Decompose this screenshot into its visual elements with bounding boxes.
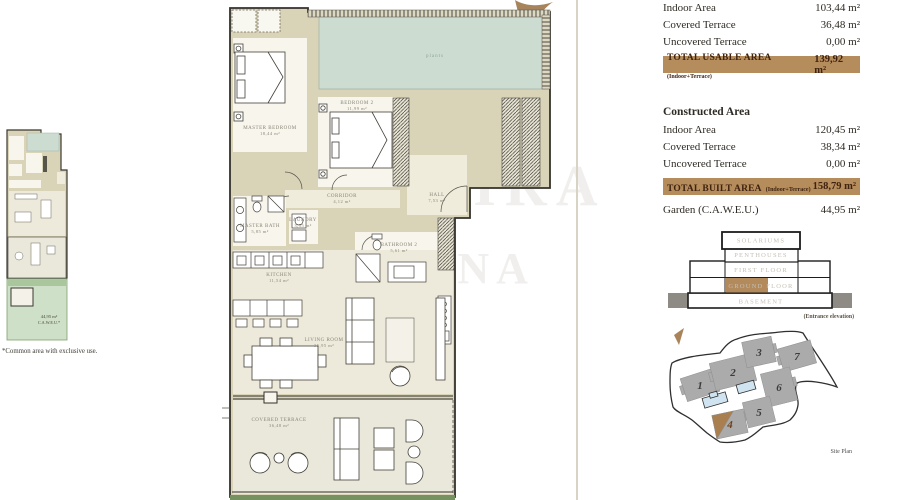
- plants-label: plants: [426, 54, 444, 59]
- row-value: 38,34 m²: [821, 141, 860, 153]
- site-plan: 1 2 3 7 6 5 4 Site Plan: [660, 325, 860, 465]
- table-row: Covered Terrace 36,48 m²: [663, 19, 860, 36]
- row-label: Garden (C.A.W.E.U.): [663, 204, 759, 216]
- elevation-caption: (Entrance elevation): [804, 313, 854, 320]
- floor-label-ground-floor: GROUND FLOOR: [728, 283, 793, 290]
- row-label: Covered Terrace: [663, 19, 736, 31]
- total-usable-band: TOTAL USABLE AREA (Indoor+Terrace) 139,9…: [663, 56, 860, 73]
- table-row: Covered Terrace 38,34 m²: [663, 141, 860, 158]
- row-value: 36,48 m²: [821, 19, 860, 31]
- floor-label-solariums: SOLARIUMS: [737, 238, 785, 245]
- floor-label-basement: BASEMENT: [739, 299, 784, 306]
- bedroom2-bed: [319, 104, 392, 178]
- garden-row: Garden (C.A.W.E.U.) 44,95 m²: [663, 204, 860, 221]
- row-label: Indoor Area: [663, 2, 716, 14]
- row-value: 0,00 m²: [826, 36, 860, 48]
- plants-hatch-top: [308, 10, 550, 17]
- total-label: TOTAL USABLE AREA: [667, 53, 771, 63]
- thumbnail-garden-note: C.A.W.E.U.*: [38, 320, 60, 325]
- ground-right: [832, 293, 852, 308]
- row-value: 103,44 m²: [815, 2, 860, 14]
- total-qualifier: (Indoor+Terrace): [766, 187, 811, 193]
- site-north-arrow-icon: [674, 328, 684, 345]
- total-qualifier: (Indoor+Terrace): [667, 74, 712, 80]
- ground-left: [668, 293, 688, 308]
- brochure-page: SIRA INTERNA WWW 44,95 m² C.A.W.E.U.* *C…: [0, 0, 900, 500]
- thumbnail-footnote: *Common area with exclusive use.: [2, 348, 142, 355]
- usable-area-table: Indoor Area 103,44 m² Covered Terrace 36…: [663, 2, 860, 73]
- floor-label-penthouses: PENTHOUSES: [734, 252, 788, 259]
- table-row: Indoor Area 120,45 m²: [663, 124, 860, 141]
- panel-divider: [576, 0, 578, 500]
- thumbnail-garden: 44,95 m² C.A.W.E.U.*: [7, 279, 67, 340]
- constructed-area-table: Indoor Area 120,45 m² Covered Terrace 38…: [663, 124, 860, 221]
- main-floor-plan: plants: [222, 0, 578, 500]
- thumbnail-floor-plan: 44,95 m² C.A.W.E.U.*: [5, 128, 77, 342]
- building-number: 6: [776, 382, 782, 394]
- row-label: Covered Terrace: [663, 141, 736, 153]
- total-built-band: TOTAL BUILT AREA (Indoor+Terrace) 158,79…: [663, 178, 860, 195]
- building-number: 5: [756, 407, 762, 419]
- table-row: Uncovered Terrace 0,00 m²: [663, 158, 860, 175]
- table-row: Indoor Area 103,44 m²: [663, 2, 860, 19]
- row-label: Indoor Area: [663, 124, 716, 136]
- row-value: 120,45 m²: [815, 124, 860, 136]
- total-value: 139,92 m²: [814, 54, 856, 76]
- row-value: 0,00 m²: [826, 158, 860, 170]
- room-hall: [407, 155, 467, 215]
- site-plan-caption: Site Plan: [830, 449, 852, 455]
- building-number: 1: [697, 380, 703, 392]
- row-label: Uncovered Terrace: [663, 158, 747, 170]
- plants-hatch-right: [542, 15, 550, 89]
- building-number: 7: [794, 351, 800, 363]
- total-label: TOTAL BUILT AREA: [667, 184, 762, 194]
- building-number-highlighted: 4: [726, 419, 733, 431]
- row-value: 44,95 m²: [821, 204, 860, 216]
- plants-area: [319, 15, 547, 89]
- total-value: 158,79 m²: [813, 181, 856, 192]
- floor-label-first-floor: FIRST FLOOR: [734, 267, 788, 274]
- building-number: 2: [729, 367, 736, 379]
- building-number: 3: [755, 347, 762, 359]
- entrance-elevation-diagram: SOLARIUMS PENTHOUSES FIRST FLOOR GROUND …: [662, 228, 860, 323]
- constructed-area-header: Constructed Area: [663, 106, 750, 118]
